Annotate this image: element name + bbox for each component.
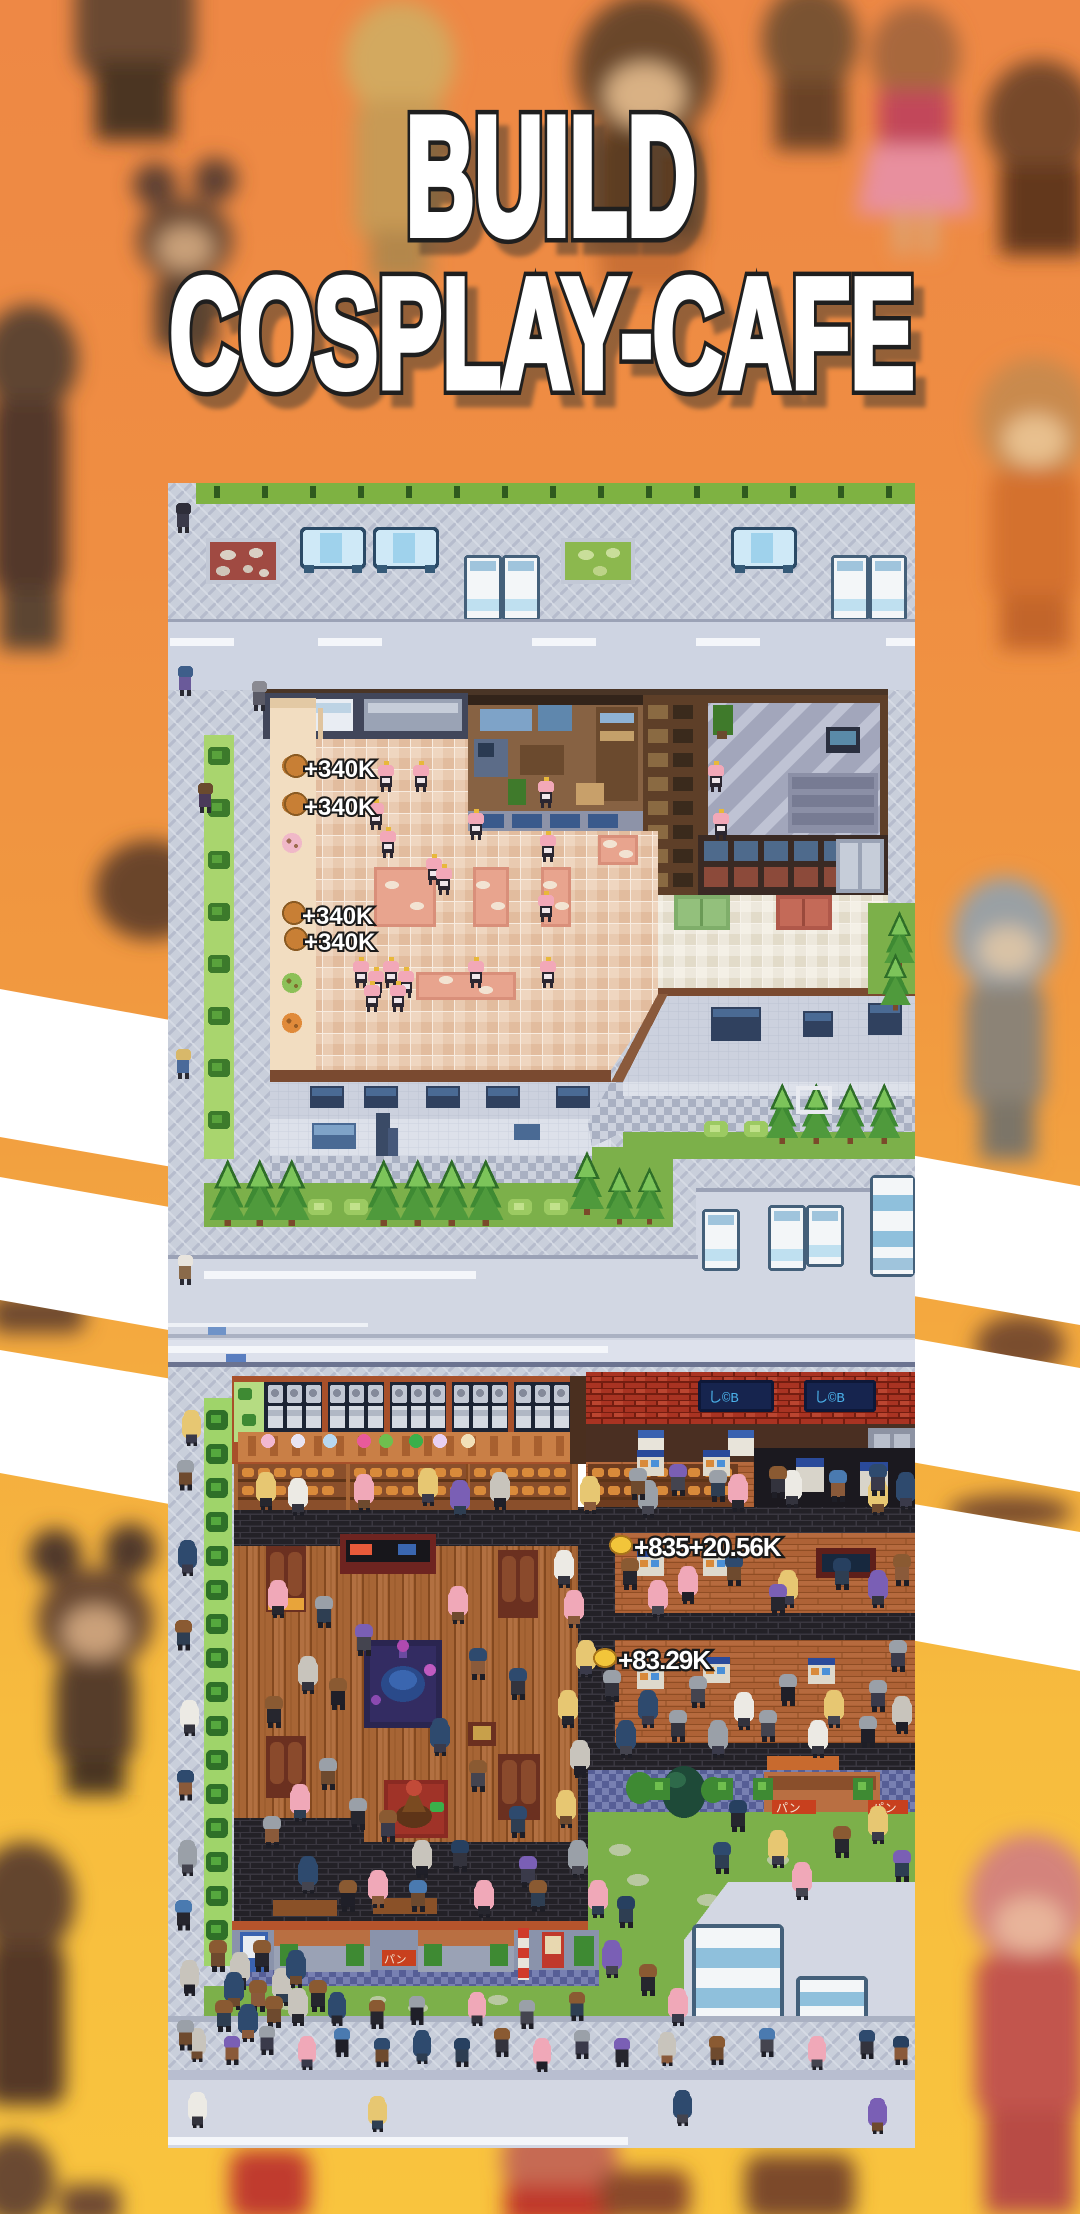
svg-text:+83.29K: +83.29K xyxy=(618,1645,711,1675)
svg-text:+340K: +340K xyxy=(302,903,374,930)
svg-text:し©B: し©B xyxy=(708,1390,739,1407)
svg-text:し©B: し©B xyxy=(814,1390,845,1407)
svg-text:+340K: +340K xyxy=(304,929,376,956)
svg-text:+340K: +340K xyxy=(304,756,376,783)
svg-text:BUILD: BUILD xyxy=(406,82,696,270)
svg-text:+835+20.56K: +835+20.56K xyxy=(634,1532,782,1562)
svg-text:COSPLAY-CAFE: COSPLAY-CAFE xyxy=(170,247,915,421)
svg-text:パン: パン xyxy=(384,1953,407,1966)
svg-text:パン: パン xyxy=(776,1801,801,1815)
svg-text:+340K: +340K xyxy=(304,794,376,821)
